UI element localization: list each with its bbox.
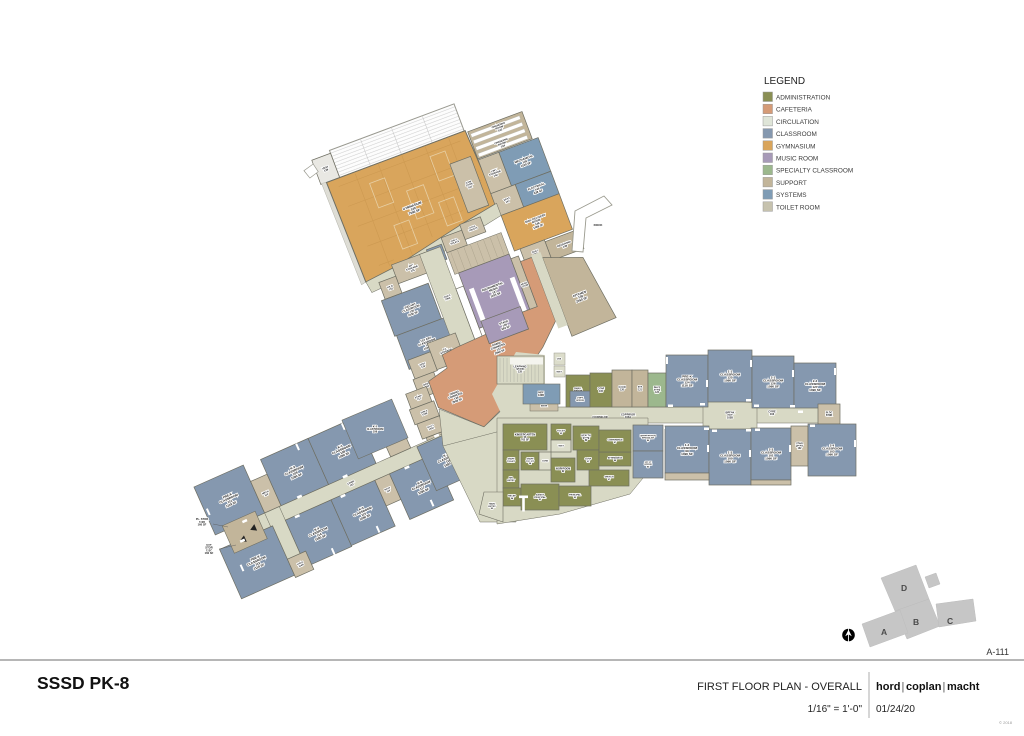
svg-text:GYMNASIUM: GYMNASIUM	[776, 143, 815, 150]
svg-text:coplan: coplan	[906, 681, 942, 693]
svg-text:SSSD PK-8: SSSD PK-8	[37, 673, 130, 693]
svg-text:© 2018: © 2018	[999, 720, 1013, 725]
svg-text:macht: macht	[947, 681, 980, 693]
svg-text:SYSTEMS: SYSTEMS	[776, 192, 807, 199]
svg-text:D: D	[901, 583, 907, 593]
svg-text:VEST: VEST	[558, 446, 564, 448]
svg-text:CAFETERIA: CAFETERIA	[776, 107, 813, 114]
svg-text:CIRCULATION: CIRCULATION	[776, 119, 819, 126]
svg-text:OSS: OSS	[557, 359, 562, 361]
svg-text:ADMINISTRATION: ADMINISTRATION	[776, 95, 831, 102]
svg-text:01/24/20: 01/24/20	[876, 704, 915, 715]
svg-text:CLASSROOM: CLASSROOM	[776, 131, 817, 138]
svg-text:VEST: VEST	[556, 372, 562, 374]
svg-text:LEGEND: LEGEND	[764, 76, 805, 87]
svg-text:STAFFTOILET: STAFFTOILET	[507, 458, 515, 463]
svg-text:hord: hord	[876, 681, 900, 693]
svg-text:CORE: CORE	[542, 461, 549, 463]
svg-text:TOILET ROOM: TOILET ROOM	[776, 204, 820, 211]
svg-text:SPECIALTY CLASSROOM: SPECIALTY CLASSROOM	[776, 168, 853, 175]
svg-text:INSTR: INSTR	[541, 406, 548, 408]
svg-text:BLDGSTOR: BLDGSTOR	[826, 413, 833, 417]
svg-text:|: |	[902, 681, 905, 693]
svg-text:MDF133B: MDF133B	[538, 392, 544, 398]
svg-text:DOCK: DOCK	[594, 223, 604, 227]
svg-text:A: A	[881, 627, 887, 637]
svg-text:B: B	[913, 617, 919, 627]
svg-text:C: C	[947, 616, 953, 626]
svg-text:FIRST FLOOR PLAN - OVERALL: FIRST FLOOR PLAN - OVERALL	[697, 681, 862, 693]
svg-text:1/16" = 1'-0": 1/16" = 1'-0"	[808, 704, 863, 715]
svg-text:|: |	[943, 681, 946, 693]
svg-text:SUPPORT: SUPPORT	[776, 180, 807, 187]
svg-text:MUSIC ROOM: MUSIC ROOM	[776, 156, 818, 163]
svg-text:A-111: A-111	[986, 647, 1009, 657]
